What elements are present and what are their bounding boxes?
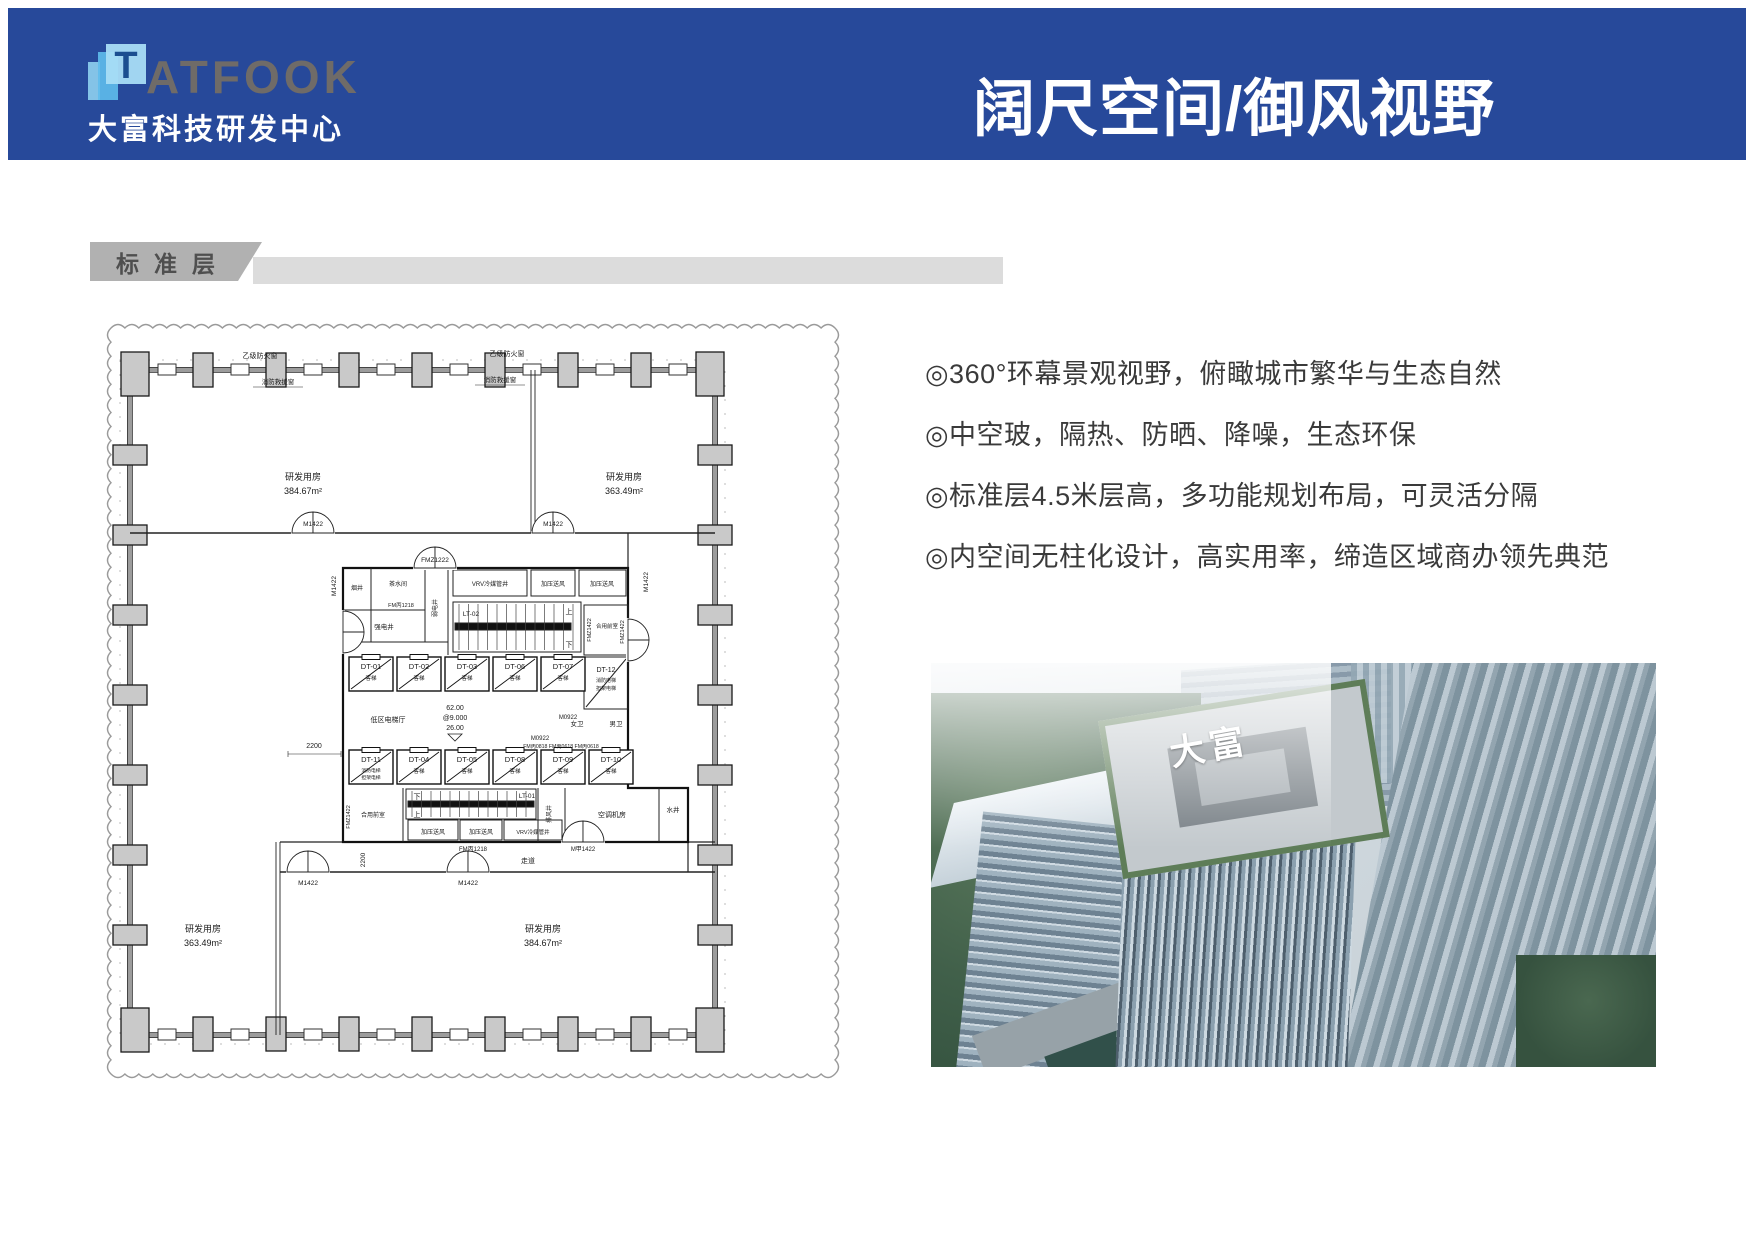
room-label: 研发用房 bbox=[525, 923, 561, 934]
logo: T ATFOOK bbox=[86, 42, 361, 106]
feature-item: ◎内空间无柱化设计，高实用率，缔造区域商办领先典范 bbox=[925, 535, 1525, 563]
lift-type: 客梯 bbox=[461, 767, 473, 775]
shaft-label: 烟井 bbox=[351, 584, 363, 592]
shaft-label: 加压送风 bbox=[469, 828, 493, 836]
door-label: M1422 bbox=[543, 521, 563, 528]
stair-down: 下 bbox=[566, 641, 573, 649]
lift-type: 客梯 bbox=[605, 767, 617, 775]
lift-id: DT-04 bbox=[409, 755, 429, 764]
logo-wordmark: ATFOOK bbox=[146, 54, 361, 100]
lift-type: 客梯 bbox=[509, 674, 521, 682]
door-label: FMZ1422 bbox=[620, 620, 626, 644]
lift-id: DT-06 bbox=[505, 662, 525, 671]
room-label: 研发用房 bbox=[285, 471, 321, 482]
section-tab: 标准层 bbox=[90, 242, 262, 281]
level-mark: @9.000 bbox=[443, 715, 468, 722]
lift-type: 担架电梯 bbox=[361, 774, 380, 781]
shaft-label: 水井 bbox=[667, 805, 681, 814]
door-label: M1422 bbox=[458, 880, 478, 887]
dimension: 2200 bbox=[360, 852, 367, 867]
lift-id: DT-12 bbox=[596, 667, 615, 674]
logo-subtitle: 大富科技研发中心 bbox=[88, 106, 344, 148]
plan-label: 消防救援窗 bbox=[262, 377, 295, 386]
door-label: FMZ1422 bbox=[587, 618, 593, 642]
door-label: FM丙1218 bbox=[459, 846, 488, 853]
shaft-label: 排风井 bbox=[545, 805, 553, 823]
feature-item: ◎中空玻，隔热、防晒、降噪，生态环保 bbox=[925, 413, 1525, 441]
lift-type: 客梯 bbox=[413, 767, 425, 775]
header-banner: T ATFOOK 大富科技研发中心 阔尺空间/御风视野 bbox=[8, 8, 1746, 160]
shaft-label: 加压送风 bbox=[421, 828, 445, 836]
room-label: 合用前室 bbox=[361, 811, 385, 819]
lift-type: 客梯 bbox=[413, 674, 425, 682]
room-label: 女卫 bbox=[571, 719, 585, 728]
section-strip bbox=[253, 257, 1003, 284]
shaft-label: 加压送风 bbox=[590, 580, 614, 588]
door-label: FM丙1218 bbox=[388, 602, 414, 609]
lift-id: DT-07 bbox=[553, 662, 573, 671]
room-label: 研发用房 bbox=[185, 923, 221, 934]
lift-type: 客梯 bbox=[461, 674, 473, 682]
lift-id: DT-05 bbox=[457, 755, 477, 764]
lift-id: DT-02 bbox=[409, 662, 429, 671]
tatfook-logo-icon: T bbox=[86, 44, 152, 106]
room-area: 363.49m² bbox=[184, 938, 222, 948]
door-label: FMZ1422 bbox=[346, 805, 352, 829]
room-area: 384.67m² bbox=[284, 486, 322, 496]
level-mark: 62.00 bbox=[446, 705, 464, 712]
door-label: M1422 bbox=[298, 880, 318, 887]
room-label: 茶水间 bbox=[389, 580, 407, 588]
lift-type: 客梯 bbox=[557, 674, 569, 682]
door-label: M1422 bbox=[303, 521, 323, 528]
shaft-label: VRV冷媒管井 bbox=[516, 828, 550, 836]
lift-id: DT-11 bbox=[361, 755, 381, 764]
plan-label: 消防救援窗 bbox=[484, 375, 517, 384]
feature-item: ◎360°环幕景观视野，俯瞰城市繁华与生态自然 bbox=[925, 352, 1525, 380]
lift-type: 客梯 bbox=[365, 674, 377, 682]
lift-id: DT-09 bbox=[553, 755, 573, 764]
photo-trees bbox=[1516, 955, 1656, 1067]
lift-type: 担架电梯 bbox=[596, 685, 616, 692]
stair-up: 上 bbox=[566, 607, 573, 616]
stair-down: 下 bbox=[414, 793, 421, 801]
plan-label: 乙级防火窗 bbox=[490, 349, 525, 358]
door-label: M甲1422 bbox=[571, 846, 596, 853]
room-label: 合用前室 bbox=[596, 622, 619, 630]
stair-label: LT-01 bbox=[519, 793, 536, 800]
stair-label: LT-02 bbox=[463, 611, 480, 618]
lift-id: DT-03 bbox=[457, 662, 477, 671]
door-label: M1422 bbox=[331, 576, 338, 596]
shaft-label: 强电井 bbox=[374, 622, 394, 631]
logo-letter-t: T bbox=[114, 45, 137, 87]
door-label: M1422 bbox=[643, 572, 650, 592]
shaft-label: VRV冷媒管井 bbox=[472, 580, 508, 588]
lift-type: 客梯 bbox=[557, 767, 569, 775]
dimension: 2200 bbox=[306, 743, 322, 750]
lift-id: DT-01 bbox=[361, 662, 381, 671]
feature-list: ◎360°环幕景观视野，俯瞰城市繁华与生态自然 ◎中空玻，隔热、防晒、降噪，生态… bbox=[925, 352, 1525, 596]
lift-type: 消防电梯 bbox=[596, 677, 616, 684]
door-label: FM丙0818 FM丙0618 FM丙0618 bbox=[523, 743, 599, 750]
photo-haze bbox=[931, 663, 1331, 848]
room-label: 研发用房 bbox=[606, 471, 642, 482]
floor-plan-svg: 乙级防火窗 消防救援窗 乙级防火窗 消防救援窗 研发用房 384.67m² 研发… bbox=[103, 320, 843, 1082]
lift-id: DT-10 bbox=[601, 755, 621, 764]
shaft-label: 加压送风 bbox=[541, 580, 565, 588]
room-area: 384.67m² bbox=[524, 938, 562, 948]
door-label: M0922 bbox=[531, 736, 550, 742]
feature-item: ◎标准层4.5米层高，多功能规划布局，可灵活分隔 bbox=[925, 474, 1525, 502]
stair-up: 上 bbox=[414, 810, 421, 819]
room-label: 走道 bbox=[521, 856, 535, 865]
room-label: 低区电梯厅 bbox=[371, 715, 406, 724]
door-label: FMZ1222 bbox=[421, 557, 449, 564]
floor-plan-panel: 乙级防火窗 消防救援窗 乙级防火窗 消防救援窗 研发用房 384.67m² 研发… bbox=[103, 320, 843, 1082]
section-label: 标准层 bbox=[90, 245, 230, 279]
page-title: 阔尺空间/御风视野 bbox=[973, 58, 1533, 148]
lift-type: 客梯 bbox=[509, 767, 521, 775]
building-rendering-photo: 大富 bbox=[931, 663, 1656, 1067]
room-label: 男卫 bbox=[610, 720, 624, 728]
lift-id: DT-08 bbox=[505, 755, 525, 764]
plan-label: 乙级防火窗 bbox=[243, 351, 278, 360]
level-mark: 26.00 bbox=[446, 725, 464, 732]
room-area: 363.49m² bbox=[605, 486, 643, 496]
shaft-label: 弱电井 bbox=[431, 599, 439, 617]
room-label: 空调机房 bbox=[598, 810, 626, 819]
lift-type: 消防电梯 bbox=[361, 767, 380, 774]
